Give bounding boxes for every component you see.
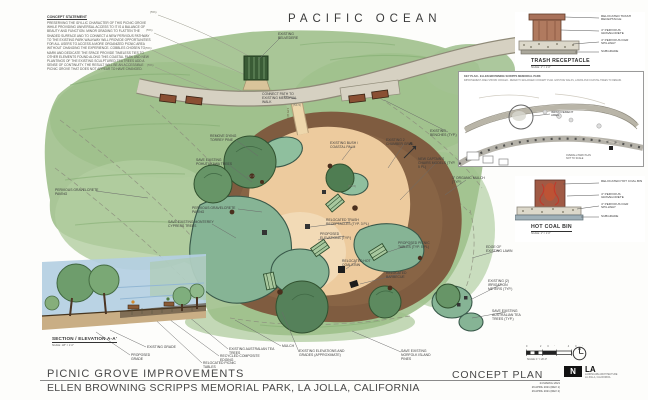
trash-receptacle-plan-icon xyxy=(305,224,310,229)
section-callout: EXISTING ELEVATIONS AND GRADES (APPROXIM… xyxy=(299,349,345,357)
plan-callout: 3" ORGANIC MULCH (TYP.) xyxy=(452,176,486,184)
section-callout: MULCH xyxy=(282,344,296,348)
concept-statement-heading: CONCEPT STATEMENT xyxy=(47,15,153,19)
slope-callout: (5%) xyxy=(145,47,152,51)
plan-callout: NEW CAPTAIN'S CHAIRS MODELS (TYP. 5 PL) xyxy=(418,157,456,169)
section-elevation-artwork xyxy=(42,254,206,330)
plan-callout: EXISTING BELVEDERE xyxy=(278,32,312,40)
firm-line: LA JOLLA, CALIFORNIA xyxy=(585,377,635,380)
detail-callout: 4" PERVIOUS DGR SPILLWAY xyxy=(601,203,643,210)
titleblock-rule xyxy=(40,380,560,381)
trash-receptacle-detail: RELOCATED TRASH RECEPTACLE 4" PERVIOUS G… xyxy=(515,12,645,70)
plan-callout: EXISTING BUSH / COASTAL PALM xyxy=(330,141,364,149)
plan-callout: EXISTING 2 CHAMBER GRILL xyxy=(386,138,418,146)
section-callout: EXISTING GRADE xyxy=(147,345,177,349)
key-map-caption-line2: NOT TO SCALE xyxy=(566,157,583,160)
spot-elevation: (52.4) xyxy=(247,175,255,179)
section-callout: RECYCLED COMPOSITE EDGING xyxy=(220,354,264,362)
plan-callout: PERVIOUS GRAVELCRETE PAVING xyxy=(192,206,238,214)
plan-callout: EXISTING BENCHES (TYP.) xyxy=(430,129,457,137)
trash-receptacle-plan-icon xyxy=(262,230,267,235)
plan-callout: RELOCATED TRASH RECEPTACLES (TYP. 3 PL) xyxy=(326,218,370,226)
firm-logo: N xyxy=(564,366,582,377)
sheet-title: PICNIC GROVE IMPROVEMENTS xyxy=(47,368,244,380)
concept-statement-body: PRESERVING THE IDYLLIC CHARACTER OF THIS… xyxy=(47,21,153,72)
spot-elevation: (53.6) xyxy=(348,185,356,189)
slope-callout: (5%) xyxy=(147,64,154,68)
plan-callout: 175 LF± xyxy=(285,108,289,119)
slope-callout: (5%) xyxy=(146,29,153,33)
detail-title: TRASH RECEPTACLE xyxy=(531,58,590,66)
sheet-subtitle: ELLEN BROWNING SCRIPPS MEMORIAL PARK, LA… xyxy=(47,382,420,394)
plan-callout: EXISTING (2) IRRIGATION METERS (TYP.) xyxy=(488,279,520,291)
plan-callout: PERVIOUS GRAVELCRETE PAVING xyxy=(55,188,99,196)
concept-plan-sheet: PACIFIC OCEAN CONCEPT STATEMENT PRESERVI… xyxy=(0,0,648,400)
spot-elevation: (54.5) xyxy=(293,104,301,108)
plan-callout: SAVE EXISTING POHUTUKAWA TREES xyxy=(196,158,240,166)
date-line: 29 APRIL 2021 (REV 2) xyxy=(516,390,560,394)
hot-coal-bin-detail: RELOCATED HOT COAL BIN 4" PERVIOUS GRAVE… xyxy=(515,176,645,242)
plan-callout: SAVE EXISTING MONTEREY CYPRESS TREES xyxy=(168,220,214,228)
scale-bar xyxy=(526,349,574,358)
detail-callout: 4" PERVIOUS DGR SPILLWAY xyxy=(601,39,643,46)
irrigation-meter-icon xyxy=(457,303,461,307)
detail-callout: 4" PERVIOUS GRAVELCRETE xyxy=(601,29,643,36)
plan-callout: RELOCATED HOT COALS BIN xyxy=(342,259,372,267)
ocean-label: PACIFIC OCEAN xyxy=(288,13,442,25)
key-map-caption: OVERALL PARK PLAN NOT TO SCALE xyxy=(566,154,610,160)
plan-callout: RELOCATED BARBECUE xyxy=(386,271,420,279)
firm-logo-letters: LA xyxy=(585,365,596,374)
firm-info: LANDSCAPE ARCHITECTURE LA JOLLA, CALIFOR… xyxy=(585,374,635,380)
plan-callout: REMOVE DYING TORREY PINE xyxy=(210,134,248,142)
section-callout: EXISTING AUSTRALIAN TEA TREES xyxy=(229,347,275,355)
irrigation-meter-icon xyxy=(464,296,468,300)
key-map-heading: KEY PLAN - ELLEN BROWNING SCRIPPS MEMORI… xyxy=(464,75,624,78)
scale-bar-note: SCALE: 1" = 20'-0" xyxy=(527,358,547,361)
hot-coal-bin-plan-icon xyxy=(338,266,345,273)
revision-dates: 24 MARCH 2021 26 APRIL 2021 (REV 1) 29 A… xyxy=(516,382,560,394)
north-arrow-icon xyxy=(572,346,587,361)
section-callout: SAVE EXISTING NORFOLK ISLAND PINES xyxy=(401,349,441,361)
belvedere-icon xyxy=(243,56,270,90)
detail-title: HOT COAL BIN xyxy=(531,224,572,232)
detail-callout: SUBGRADE xyxy=(601,215,643,218)
plan-callout: SAVE EXISTING AUSTRALIAN TEA TREES (TYP.… xyxy=(492,309,532,321)
detail-scale: SCALE: 1" = 1'-0" xyxy=(531,66,551,69)
key-map-panel: KEY PLAN - ELLEN BROWNING SCRIPPS MEMORI… xyxy=(458,71,644,167)
detail-scale: SCALE: 1" = 1'-0" xyxy=(531,232,551,235)
improvement-area-label: IMPROVEMENT AREA xyxy=(551,111,577,118)
detail-callout: SUBGRADE xyxy=(601,50,643,53)
plan-type-label: CONCEPT PLAN xyxy=(452,369,543,381)
plan-callout: EDGE OF EXISTING LAWN xyxy=(486,245,514,253)
section-callout: PROPOSED GRADE xyxy=(131,353,161,361)
plan-callout: PROPOSED PICNIC TABLES (TYP. 5 PL) xyxy=(398,241,434,249)
detail-callout: RELOCATED HOT COAL BIN xyxy=(601,180,643,183)
section-cut-label: A xyxy=(409,141,412,146)
concept-statement: CONCEPT STATEMENT PRESERVING THE IDYLLIC… xyxy=(47,15,153,72)
key-map-note: IMPROVEMENT AREA SHOWN CIRCLED - REFER T… xyxy=(464,80,636,83)
section-scale: SCALE: 1/8" = 1'-0" xyxy=(52,344,74,347)
detail-callout: 4" PERVIOUS GRAVELCRETE xyxy=(601,193,643,200)
plan-callout: PROPOSED ELEVATIONS (TYP.) xyxy=(320,232,356,240)
key-map-sketch xyxy=(459,86,643,166)
slope-callout: (5%) xyxy=(150,11,157,15)
detail-callout: RELOCATED TRASH RECEPTACLE xyxy=(601,15,643,22)
section-title: SECTION / ELEVATION A-A' xyxy=(52,336,117,343)
